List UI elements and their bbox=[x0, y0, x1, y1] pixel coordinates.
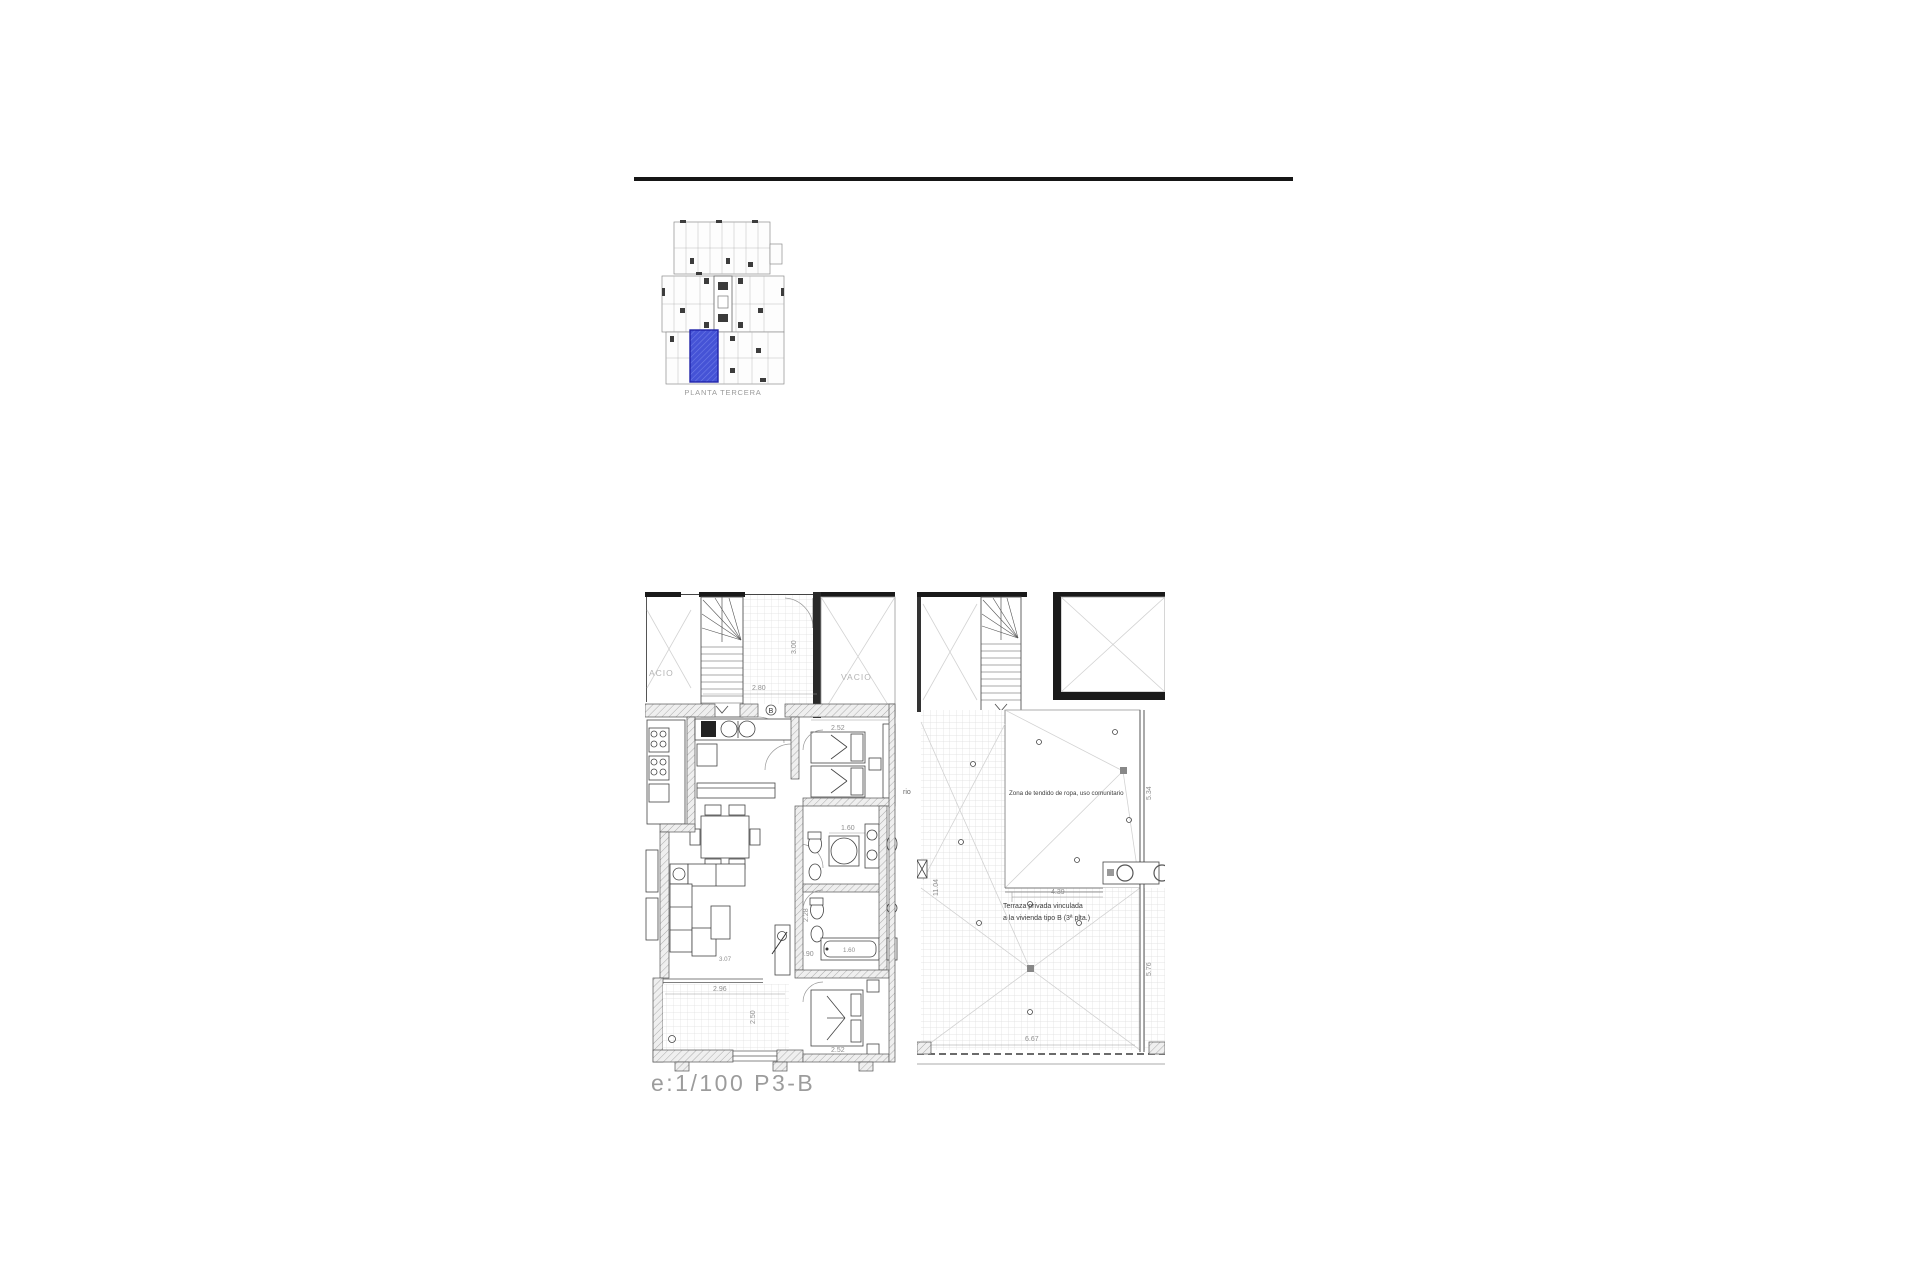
svg-text:Terraza privada vinculada: Terraza privada vinculada bbox=[1003, 903, 1083, 910]
kitchen bbox=[647, 717, 799, 829]
svg-text:B: B bbox=[769, 708, 774, 715]
floor-plan-terrace: 2.28 Zona de tendido de ropa, uso comuni… bbox=[917, 592, 1165, 1070]
svg-text:1.60: 1.60 bbox=[841, 825, 855, 832]
svg-text:2.52: 2.52 bbox=[831, 725, 845, 732]
svg-text:VACIO: VACIO bbox=[841, 672, 872, 682]
svg-text:2.52: 2.52 bbox=[831, 1047, 845, 1054]
svg-text:3.00: 3.00 bbox=[791, 640, 798, 654]
svg-text:4.39: 4.39 bbox=[1051, 889, 1065, 896]
floor-plan-apartment: ACIO VACIO bbox=[645, 592, 900, 1082]
svg-text:6.67: 6.67 bbox=[1025, 1036, 1039, 1043]
stair-landing-zone: ACIO VACIO bbox=[645, 592, 895, 718]
svg-text:2.28: 2.28 bbox=[803, 908, 810, 922]
title-rule bbox=[634, 177, 1293, 181]
svg-text:1.60: 1.60 bbox=[843, 947, 856, 954]
svg-text:Zona de tendido de ropa, uso c: Zona de tendido de ropa, uso comunitario bbox=[1009, 790, 1124, 797]
dining-table bbox=[690, 805, 760, 869]
keyplan-caption: PLANTA TERCERA bbox=[655, 388, 791, 397]
key-plan-building bbox=[662, 220, 784, 384]
terrace: 2.96 2.50 bbox=[653, 978, 803, 1062]
zona-tendido: Zona de tendido de ropa, uso comunitario… bbox=[982, 710, 1153, 888]
svg-text:2.96: 2.96 bbox=[713, 986, 727, 993]
svg-text:2.50: 2.50 bbox=[750, 1010, 757, 1024]
svg-text:3.07: 3.07 bbox=[719, 956, 732, 963]
bedroom-1: 2.52 bbox=[803, 720, 895, 806]
svg-text:5.34: 5.34 bbox=[1146, 786, 1153, 800]
plan-sheet: PLANTA TERCERA ACIO bbox=[0, 0, 1920, 1280]
svg-text:11.04: 11.04 bbox=[933, 879, 940, 896]
roof-stair-zone: 2.28 bbox=[917, 592, 1165, 720]
bathrooms: 1.60 1.60 2.28 bbox=[795, 806, 897, 970]
scale-label: e:1/100 P3-B bbox=[651, 1070, 815, 1097]
svg-text:2.80: 2.80 bbox=[752, 685, 766, 692]
cut-label-fragment: rio bbox=[903, 789, 911, 796]
key-plan bbox=[660, 218, 786, 390]
svg-text:a la vivienda tipo B (3ª plta.: a la vivienda tipo B (3ª plta.) bbox=[1003, 915, 1090, 922]
svg-text:5.76: 5.76 bbox=[1146, 962, 1153, 976]
svg-text:ACIO: ACIO bbox=[649, 668, 674, 678]
highlighted-unit bbox=[690, 330, 718, 382]
